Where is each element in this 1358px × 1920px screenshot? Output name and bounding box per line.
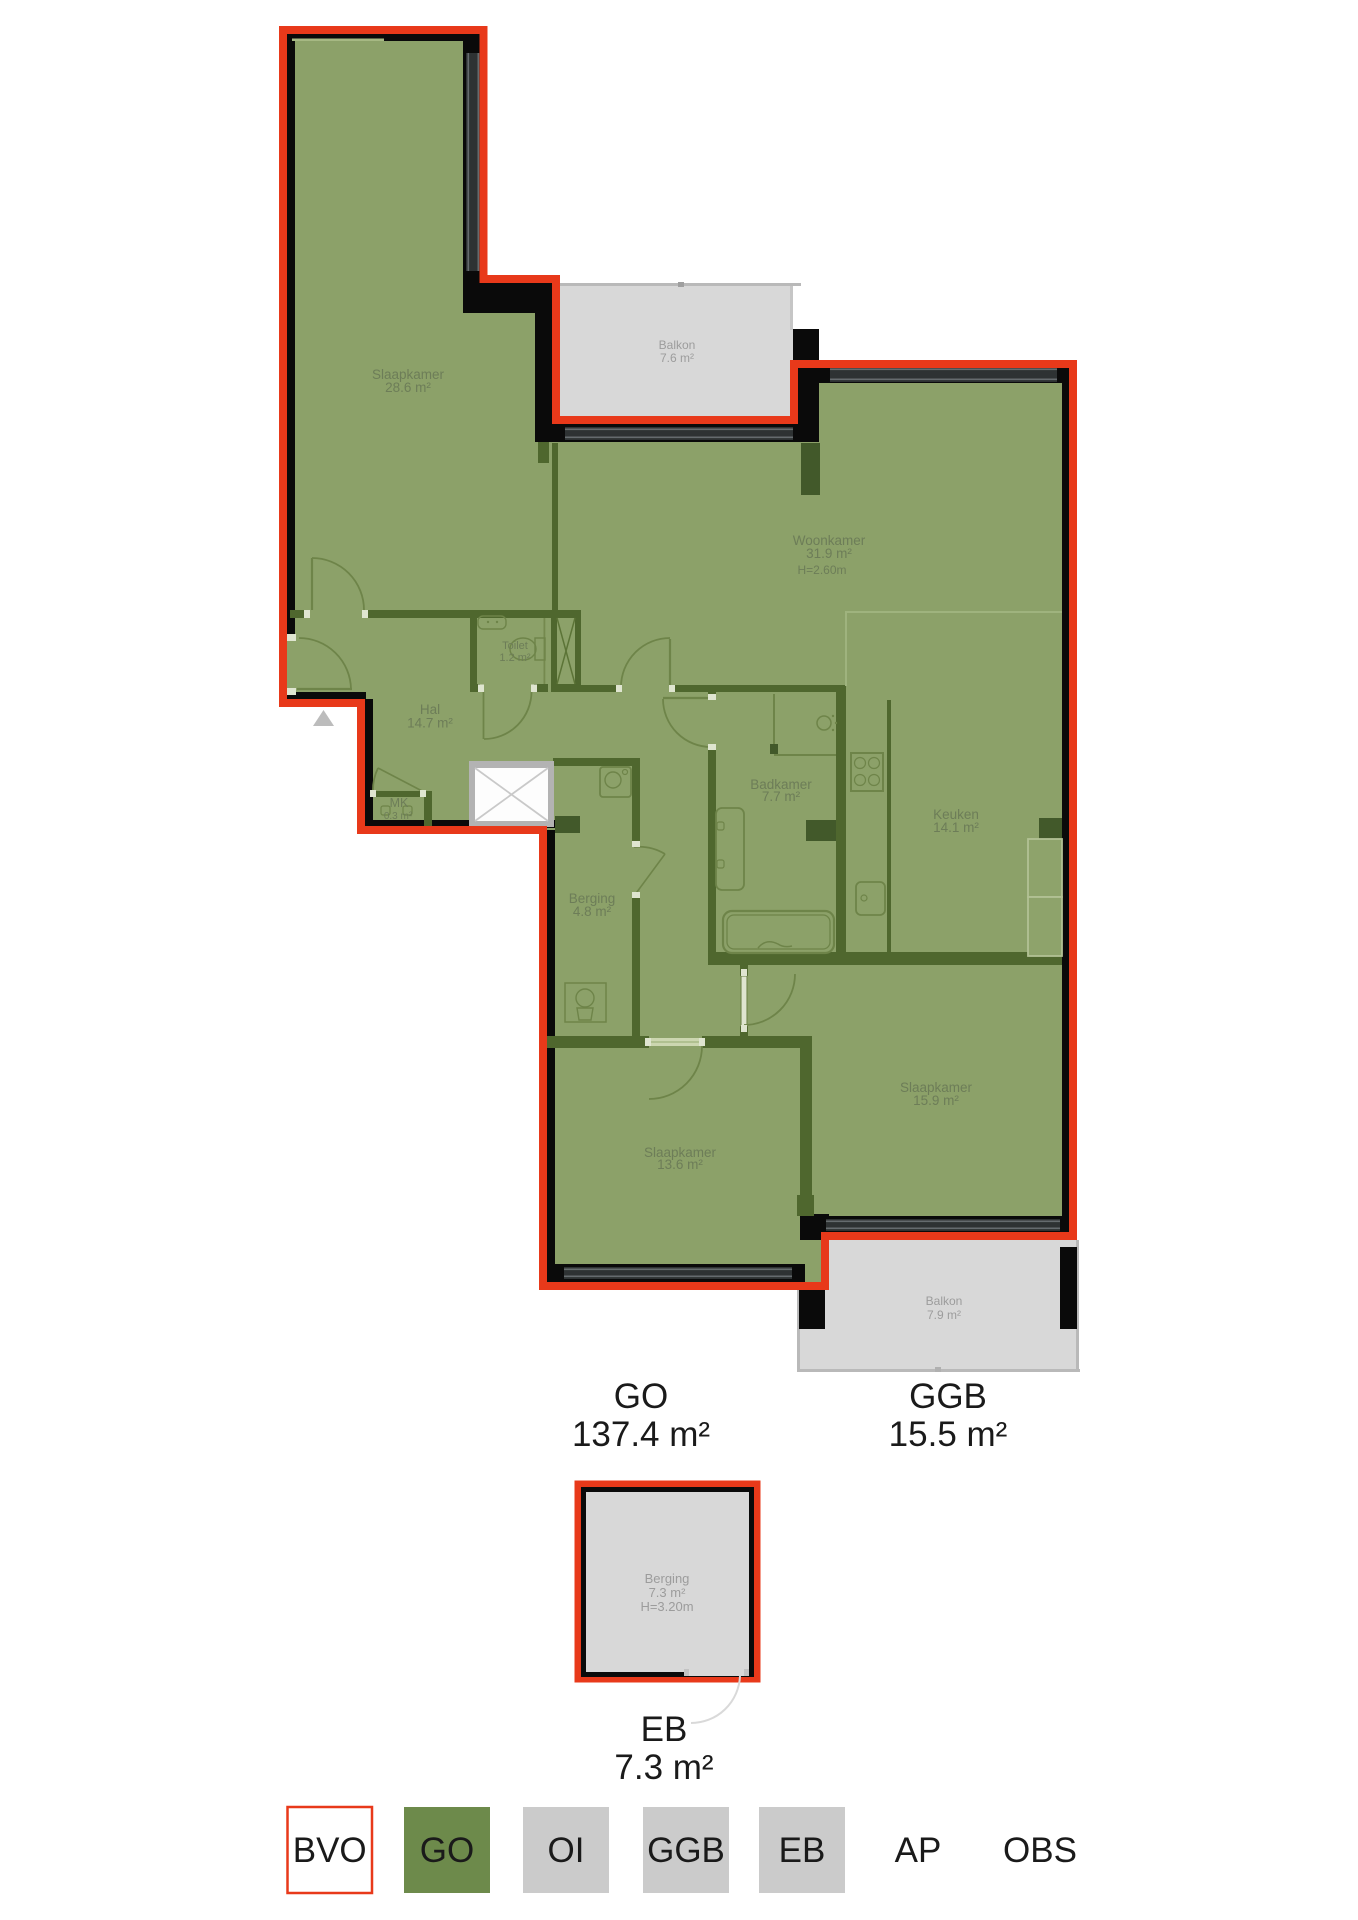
svg-text:MK: MK	[390, 796, 409, 810]
svg-text:7.9 m²: 7.9 m²	[927, 1308, 961, 1322]
svg-text:7.3 m²: 7.3 m²	[614, 1748, 713, 1787]
svg-text:GGB: GGB	[647, 1831, 725, 1870]
svg-text:H=2.60m: H=2.60m	[797, 563, 846, 577]
svg-text:Toilet: Toilet	[502, 640, 528, 652]
svg-text:Berging: Berging	[645, 1571, 690, 1586]
svg-text:H=3.20m: H=3.20m	[640, 1599, 693, 1614]
svg-text:BVO: BVO	[293, 1831, 367, 1870]
svg-text:GGB: GGB	[909, 1377, 987, 1416]
svg-text:0.3 m²: 0.3 m²	[384, 811, 413, 822]
svg-text:31.9 m²: 31.9 m²	[806, 546, 852, 561]
svg-text:14.1 m²: 14.1 m²	[933, 820, 979, 835]
svg-text:15.5 m²: 15.5 m²	[889, 1415, 1008, 1454]
svg-text:4.8 m²: 4.8 m²	[573, 904, 612, 919]
svg-text:7.3 m²: 7.3 m²	[649, 1585, 687, 1600]
svg-text:1.2 m²: 1.2 m²	[499, 652, 531, 664]
svg-text:GO: GO	[614, 1377, 668, 1416]
svg-text:EB: EB	[779, 1831, 826, 1870]
svg-text:7.7 m²: 7.7 m²	[762, 789, 801, 804]
svg-text:EB: EB	[641, 1710, 688, 1749]
svg-text:7.6 m²: 7.6 m²	[660, 351, 694, 365]
svg-text:OBS: OBS	[1003, 1831, 1077, 1870]
svg-text:13.6 m²: 13.6 m²	[657, 1157, 703, 1172]
svg-text:OI: OI	[548, 1831, 585, 1870]
svg-text:137.4 m²: 137.4 m²	[572, 1415, 710, 1454]
svg-text:Balkon: Balkon	[926, 1294, 963, 1308]
svg-text:AP: AP	[895, 1831, 942, 1870]
svg-text:14.7 m²: 14.7 m²	[407, 716, 453, 731]
svg-text:Balkon: Balkon	[659, 338, 696, 352]
svg-text:GO: GO	[420, 1831, 474, 1870]
svg-text:28.6 m²: 28.6 m²	[385, 380, 431, 395]
svg-text:15.9 m²: 15.9 m²	[913, 1093, 959, 1108]
